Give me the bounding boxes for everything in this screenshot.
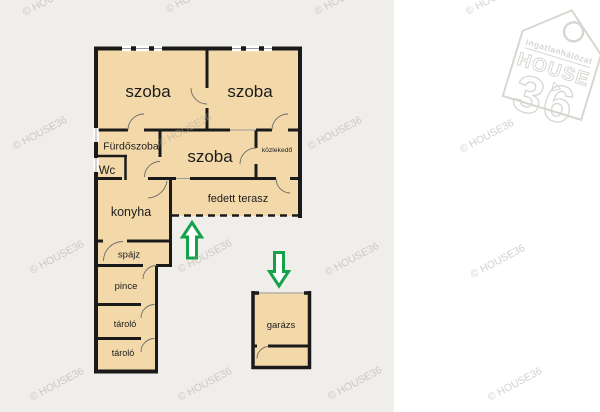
- room-label-konyha: konyha: [111, 205, 151, 219]
- room-label-tarolo-2: tároló: [112, 348, 135, 358]
- room-label-kozlekedo: közlekedő: [262, 147, 293, 154]
- floor-plan-page: szoba szoba szoba Fürdőszoba Wc közleked…: [0, 0, 600, 412]
- room-label-szoba-2: szoba: [227, 82, 273, 101]
- room-label-szoba-1: szoba: [125, 82, 171, 101]
- room-label-fedett-terasz: fedett terasz: [208, 193, 269, 205]
- room-label-spajz: spájz: [118, 250, 140, 261]
- room-label-tarolo-1: tároló: [114, 319, 137, 329]
- room-label-szoba-3: szoba: [187, 147, 233, 166]
- room-label-wc: Wc: [99, 165, 116, 177]
- room-label-furdoszoba: Fürdőszoba: [103, 141, 159, 153]
- room-label-garazs: garázs: [267, 320, 296, 331]
- floor-plan-image: szoba szoba szoba Fürdőszoba Wc közleked…: [0, 0, 600, 412]
- room-label-pince: pince: [115, 281, 138, 292]
